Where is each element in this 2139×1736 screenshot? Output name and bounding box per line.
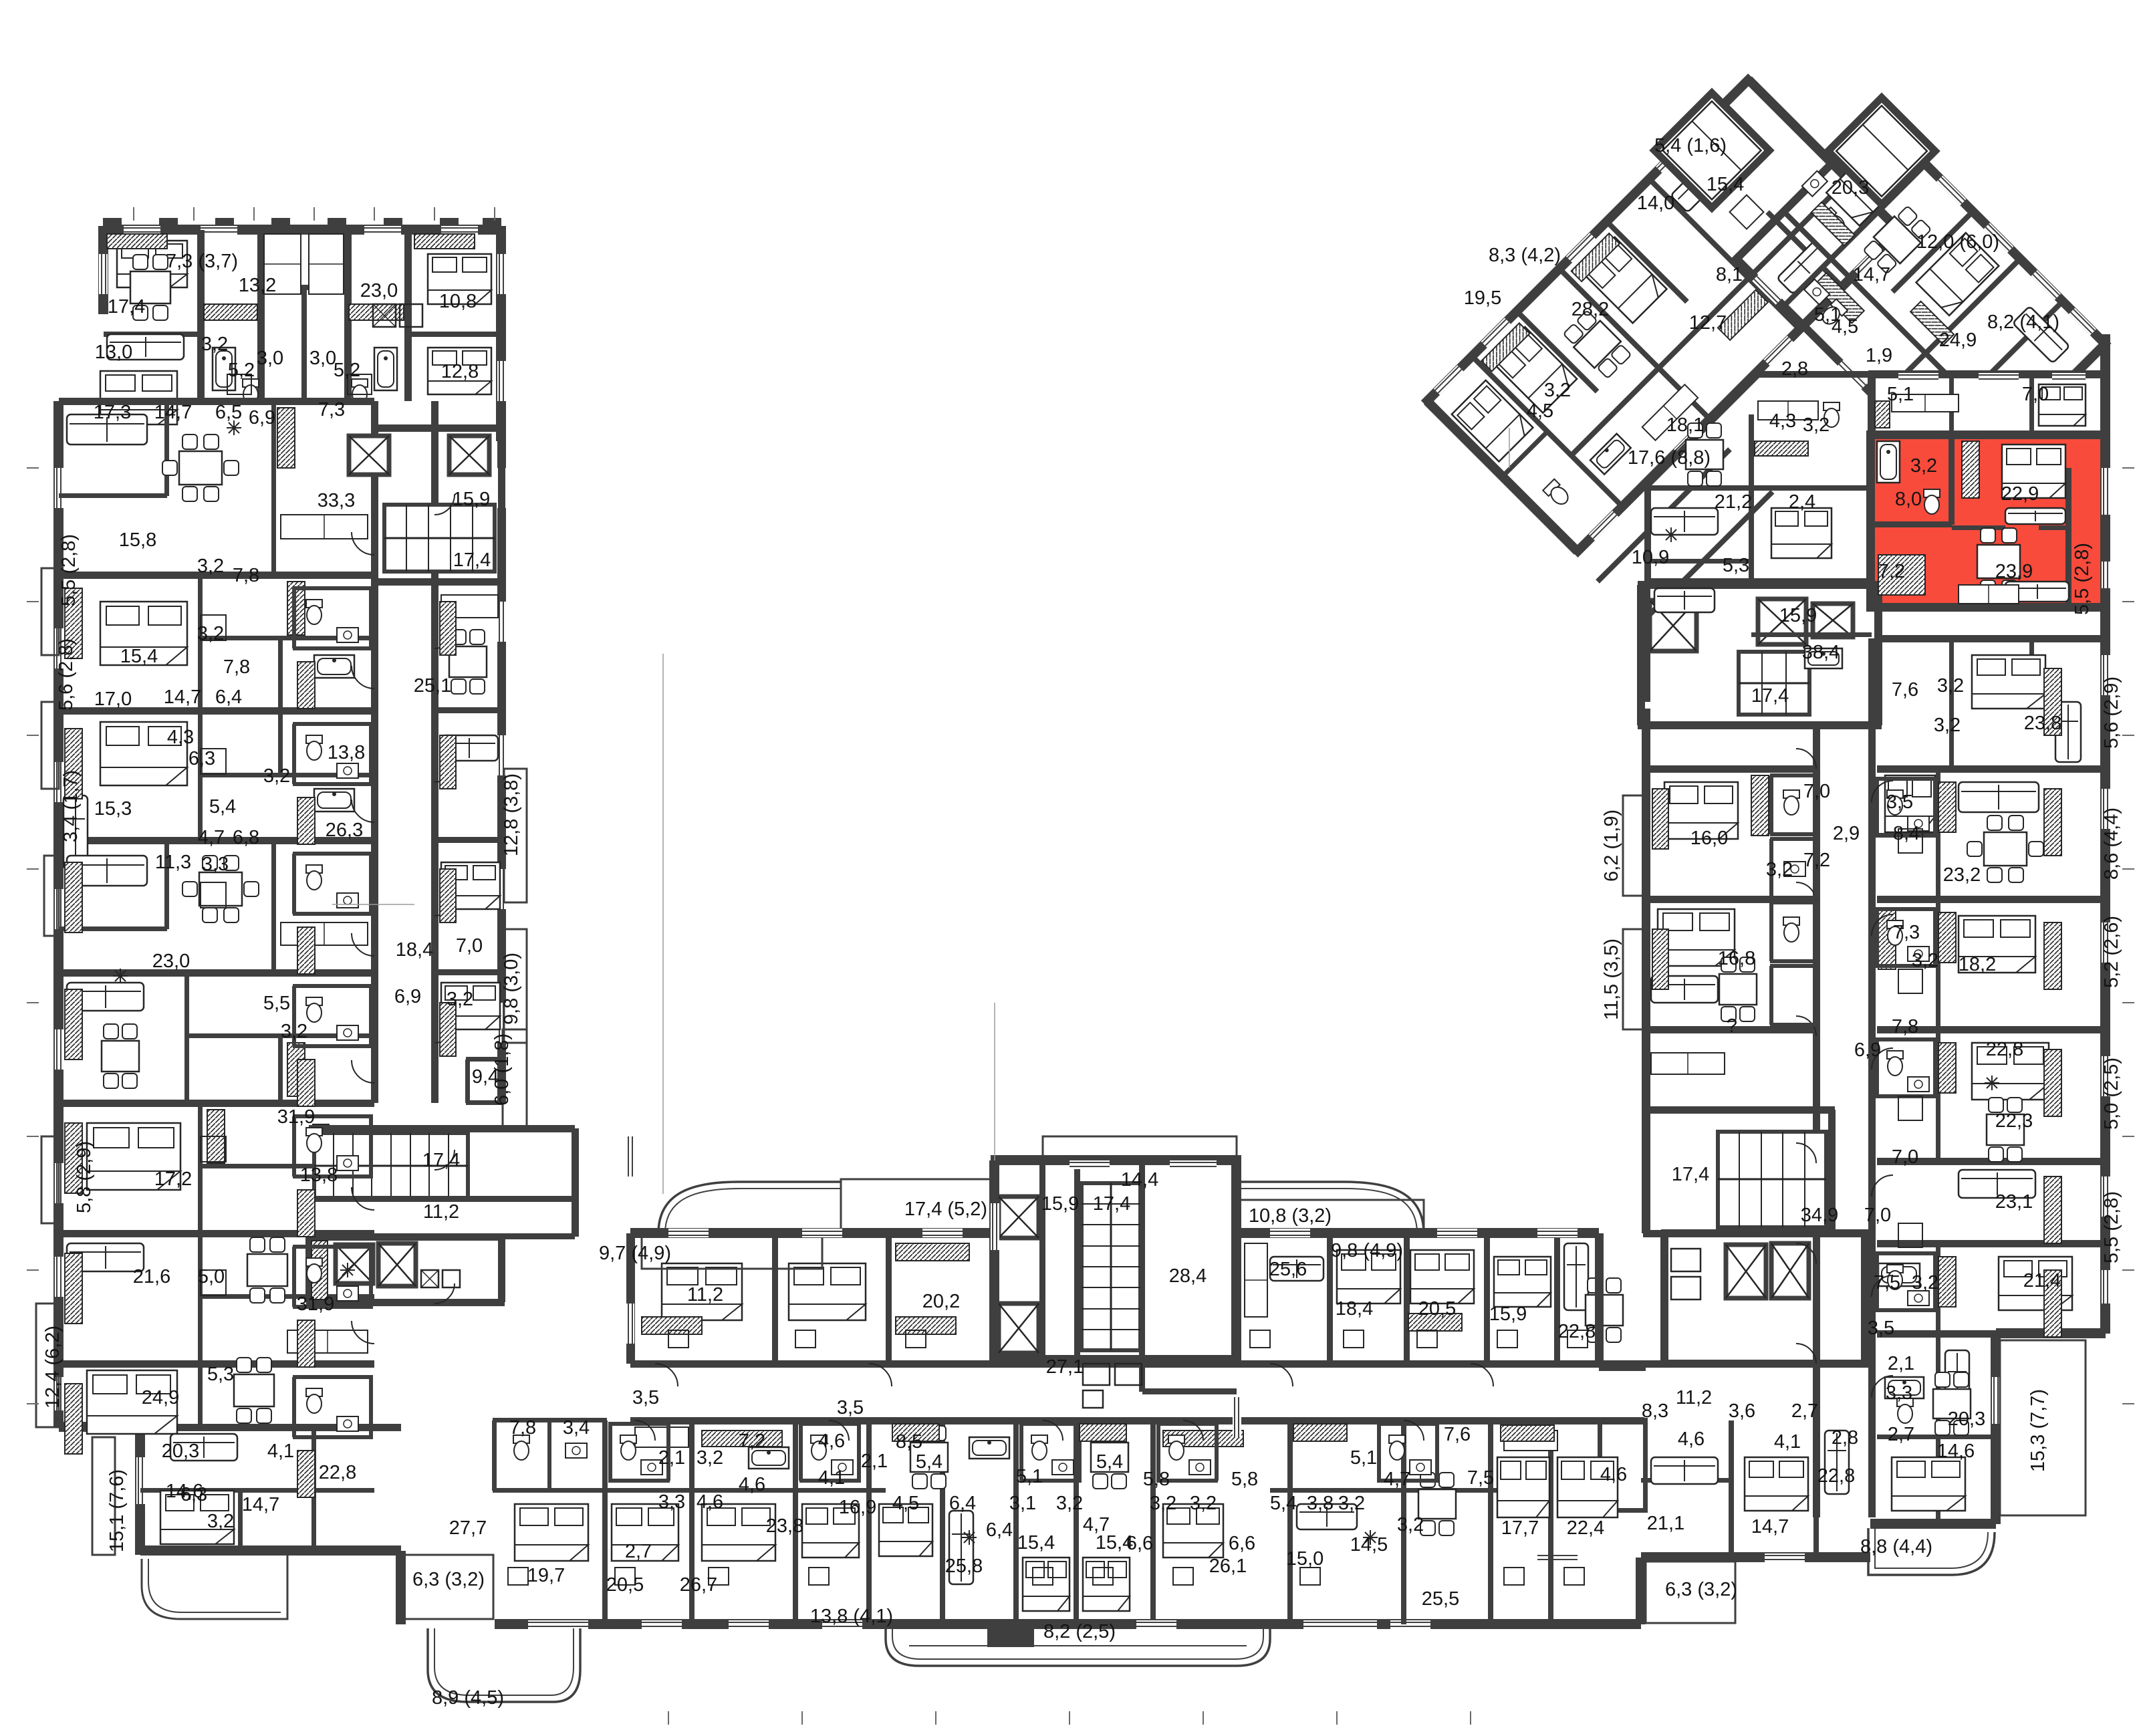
svg-text:2,1: 2,1	[861, 1451, 888, 1472]
svg-text:23,0: 23,0	[360, 280, 398, 301]
svg-text:7,8: 7,8	[509, 1417, 536, 1439]
svg-text:7,0: 7,0	[1864, 1205, 1891, 1226]
svg-text:5,8 (2,9): 5,8 (2,9)	[74, 1141, 95, 1213]
svg-text:23,8: 23,8	[766, 1515, 803, 1537]
svg-text:3,5: 3,5	[1868, 1318, 1894, 1339]
svg-text:4,3: 4,3	[167, 727, 194, 748]
svg-text:7,3: 7,3	[318, 399, 345, 420]
svg-text:4,6: 4,6	[1600, 1464, 1627, 1485]
svg-text:5,0: 5,0	[198, 1266, 225, 1287]
svg-text:8,3 (4,2): 8,3 (4,2)	[1489, 245, 1561, 266]
svg-text:19,5: 19,5	[1464, 287, 1501, 309]
svg-text:5,4: 5,4	[1270, 1493, 1297, 1514]
svg-text:5,6 (2,9): 5,6 (2,9)	[2101, 676, 2122, 749]
svg-text:6,6: 6,6	[1229, 1533, 1255, 1554]
svg-text:14,7: 14,7	[154, 402, 192, 423]
svg-text:25,6: 25,6	[1269, 1259, 1307, 1280]
svg-text:2,1: 2,1	[658, 1447, 685, 1469]
svg-text:2,8: 2,8	[1832, 1427, 1858, 1449]
svg-text:2,1: 2,1	[1888, 1353, 1914, 1374]
svg-text:5,5 (2,8): 5,5 (2,8)	[2071, 543, 2093, 615]
svg-text:15,9: 15,9	[1779, 605, 1817, 626]
svg-text:5,1: 5,1	[1350, 1447, 1377, 1469]
svg-text:24,9: 24,9	[1939, 330, 1977, 351]
svg-text:7,0: 7,0	[1803, 781, 1830, 802]
svg-text:22,8: 22,8	[1986, 1039, 2023, 1060]
svg-text:8,5: 8,5	[896, 1431, 922, 1453]
svg-text:3,2: 3,2	[697, 1447, 723, 1469]
svg-text:3,3: 3,3	[1886, 1382, 1912, 1404]
svg-text:3,6: 3,6	[1729, 1400, 1755, 1422]
svg-text:21,6: 21,6	[133, 1266, 170, 1287]
svg-text:2,9: 2,9	[1833, 823, 1860, 844]
svg-text:3,5: 3,5	[1886, 791, 1913, 813]
svg-text:23,0: 23,0	[152, 951, 190, 972]
svg-text:4,6: 4,6	[1678, 1429, 1705, 1450]
svg-text:5,3: 5,3	[207, 1364, 234, 1385]
svg-text:28,4: 28,4	[1169, 1265, 1207, 1287]
svg-text:5,5 (2,8): 5,5 (2,8)	[2101, 1191, 2122, 1263]
svg-text:8,8 (4,4): 8,8 (4,4)	[1860, 1536, 1932, 1558]
svg-text:17,4: 17,4	[422, 1150, 460, 1171]
svg-text:6,9: 6,9	[249, 407, 275, 428]
svg-text:8,0: 8,0	[1895, 489, 1922, 510]
svg-text:6,8: 6,8	[233, 827, 259, 848]
svg-text:27,1: 27,1	[1046, 1356, 1084, 1378]
svg-text:25,5: 25,5	[1422, 1588, 1459, 1610]
svg-text:5,1: 5,1	[1016, 1466, 1043, 1487]
svg-text:10,9: 10,9	[1632, 547, 1669, 568]
svg-text:22,3: 22,3	[1995, 1110, 2033, 1132]
svg-text:6,5: 6,5	[215, 402, 242, 423]
svg-text:21,1: 21,1	[1647, 1513, 1684, 1534]
svg-text:12,4 (6,2): 12,4 (6,2)	[42, 1326, 64, 1408]
svg-text:17,0: 17,0	[94, 689, 132, 710]
svg-text:21,4: 21,4	[2023, 1270, 2061, 1291]
svg-text:7,2: 7,2	[1803, 850, 1830, 871]
svg-text:2,8: 2,8	[1781, 358, 1808, 380]
svg-text:20,5: 20,5	[1418, 1298, 1456, 1320]
svg-text:11,2: 11,2	[423, 1201, 459, 1223]
svg-text:7,3: 7,3	[1893, 922, 1920, 943]
svg-text:15,1 (7,6): 15,1 (7,6)	[106, 1469, 128, 1552]
svg-text:7,5: 7,5	[1874, 1272, 1900, 1293]
svg-text:3,2: 3,2	[197, 555, 224, 577]
svg-text:6,9: 6,9	[1854, 1039, 1881, 1061]
svg-text:5,1: 5,1	[1887, 384, 1914, 405]
svg-text:21,2: 21,2	[1715, 491, 1752, 513]
svg-text:3,1: 3,1	[1009, 1493, 1036, 1514]
svg-text:18,4: 18,4	[396, 939, 433, 961]
svg-text:12,8 (3,8): 12,8 (3,8)	[501, 773, 522, 856]
svg-text:8,9 (4,5): 8,9 (4,5)	[432, 1687, 504, 1709]
svg-text:5,5 (2,8): 5,5 (2,8)	[58, 534, 80, 606]
svg-text:20,3: 20,3	[1948, 1408, 1985, 1430]
svg-text:4,6: 4,6	[818, 1431, 845, 1452]
svg-text:13,8 (4,1): 13,8 (4,1)	[810, 1606, 893, 1627]
svg-text:3,2: 3,2	[1766, 859, 1793, 880]
svg-text:20,5: 20,5	[606, 1574, 644, 1596]
svg-text:3,4: 3,4	[563, 1417, 590, 1439]
svg-text:7,0: 7,0	[1892, 1146, 1918, 1168]
svg-text:10,8: 10,8	[439, 291, 477, 312]
svg-text:6,9: 6,9	[394, 986, 421, 1007]
svg-text:5,0 (2,5): 5,0 (2,5)	[2101, 1058, 2122, 1130]
svg-text:17,2: 17,2	[154, 1168, 192, 1190]
svg-text:15,4: 15,4	[1017, 1532, 1055, 1554]
svg-text:22,4: 22,4	[1567, 1517, 1604, 1539]
svg-text:3,2: 3,2	[1397, 1514, 1424, 1535]
svg-text:28,2: 28,2	[1571, 299, 1609, 320]
svg-text:17,7: 17,7	[1501, 1517, 1539, 1539]
svg-text:6,4: 6,4	[215, 687, 242, 708]
svg-text:14,6: 14,6	[1937, 1441, 1975, 1462]
svg-text:8,2 (4,1): 8,2 (4,1)	[1987, 312, 2059, 333]
svg-text:17,3: 17,3	[94, 402, 131, 423]
svg-text:15,4: 15,4	[1707, 174, 1744, 195]
svg-text:17,4: 17,4	[108, 296, 145, 318]
svg-text:5,6 (2,8): 5,6 (2,8)	[55, 638, 77, 711]
svg-text:14,7: 14,7	[1853, 264, 1890, 285]
svg-text:15,8: 15,8	[119, 529, 156, 551]
svg-text:22,8: 22,8	[1817, 1465, 1855, 1487]
svg-text:23,8: 23,8	[2024, 713, 2061, 734]
svg-text:20,3: 20,3	[162, 1441, 199, 1462]
svg-text:8,3: 8,3	[1642, 1400, 1668, 1422]
svg-text:38,4: 38,4	[1802, 642, 1840, 663]
svg-text:5,4: 5,4	[916, 1451, 942, 1473]
svg-text:3,2: 3,2	[1934, 715, 1961, 736]
svg-text:6,3 (3,2): 6,3 (3,2)	[412, 1569, 485, 1590]
svg-text:14,5: 14,5	[1350, 1534, 1388, 1556]
svg-text:9,8 (3,0): 9,8 (3,0)	[501, 953, 522, 1025]
svg-text:3,2: 3,2	[1937, 675, 1964, 697]
svg-text:7,8: 7,8	[1892, 1016, 1918, 1037]
svg-text:16,8: 16,8	[1718, 948, 1755, 969]
svg-text:4,6: 4,6	[739, 1474, 765, 1495]
svg-text:9,8 (4,9): 9,8 (4,9)	[1331, 1240, 1403, 1261]
svg-text:14,4: 14,4	[1121, 1169, 1158, 1191]
svg-text:5,2: 5,2	[228, 360, 255, 381]
svg-text:3,2: 3,2	[263, 765, 290, 787]
svg-text:7,2: 7,2	[1878, 561, 1905, 582]
svg-text:5,3: 5,3	[1723, 555, 1749, 576]
svg-text:22,9: 22,9	[2001, 483, 2039, 505]
svg-text:3,2: 3,2	[1912, 950, 1938, 971]
svg-text:17,4: 17,4	[453, 549, 491, 571]
svg-text:20,3: 20,3	[1832, 177, 1869, 199]
svg-text:6,4: 6,4	[949, 1493, 976, 1514]
svg-text:4,5: 4,5	[1832, 316, 1858, 338]
svg-text:31,9: 31,9	[297, 1293, 334, 1315]
svg-text:3,5: 3,5	[632, 1387, 659, 1408]
svg-text:17,4: 17,4	[1751, 685, 1789, 707]
svg-text:23,1: 23,1	[1995, 1191, 2033, 1213]
svg-text:17,4: 17,4	[1093, 1193, 1130, 1215]
svg-text:3,3: 3,3	[658, 1491, 685, 1513]
svg-text:3,2: 3,2	[1910, 455, 1937, 477]
svg-text:8,2 (2,5): 8,2 (2,5)	[1043, 1621, 1116, 1642]
svg-text:3,4 (1,7): 3,4 (1,7)	[60, 770, 82, 842]
svg-text:2,7: 2,7	[1791, 1400, 1818, 1422]
svg-text:3,2: 3,2	[1338, 1493, 1365, 1514]
svg-text:33,3: 33,3	[318, 490, 355, 511]
svg-text:15,9: 15,9	[1489, 1304, 1527, 1325]
svg-text:3,2: 3,2	[197, 623, 224, 644]
svg-text:3,2: 3,2	[1056, 1493, 1083, 1514]
svg-text:4,3: 4,3	[1769, 410, 1796, 432]
svg-text:5,8: 5,8	[1231, 1469, 1258, 1490]
svg-text:14,0: 14,0	[1637, 193, 1674, 214]
svg-text:23,9: 23,9	[1995, 561, 2033, 582]
svg-text:7,3 (3,7): 7,3 (3,7)	[166, 251, 238, 272]
svg-text:27,7: 27,7	[449, 1517, 487, 1539]
svg-text:6,3 (3,2): 6,3 (3,2)	[1665, 1579, 1737, 1600]
svg-text:8,1: 8,1	[1716, 264, 1743, 285]
svg-text:3,5: 3,5	[837, 1397, 864, 1418]
svg-text:10,8 (3,2): 10,8 (3,2)	[1249, 1205, 1332, 1227]
svg-text:23,2: 23,2	[1943, 864, 1981, 886]
svg-text:9,7 (4,9): 9,7 (4,9)	[599, 1243, 671, 1264]
svg-text:26,1: 26,1	[1209, 1556, 1247, 1577]
svg-text:25,1: 25,1	[414, 675, 451, 697]
svg-text:3,2: 3,2	[447, 989, 473, 1010]
svg-text:3,2: 3,2	[1150, 1493, 1176, 1514]
svg-text:15,3: 15,3	[94, 798, 132, 820]
svg-text:4,7: 4,7	[198, 827, 225, 848]
svg-text:11,2: 11,2	[687, 1284, 723, 1306]
svg-text:34,9: 34,9	[1801, 1205, 1838, 1226]
svg-text:6,4: 6,4	[986, 1519, 1013, 1541]
svg-text:24,9: 24,9	[142, 1387, 179, 1408]
svg-text:17,4: 17,4	[1672, 1164, 1709, 1185]
svg-text:4,5: 4,5	[892, 1493, 919, 1514]
svg-text:31,9: 31,9	[277, 1106, 315, 1128]
svg-text:16,9: 16,9	[839, 1497, 876, 1518]
svg-text:18,2: 18,2	[1959, 954, 1996, 975]
svg-text:22,8: 22,8	[319, 1462, 356, 1483]
svg-text:14,6: 14,6	[166, 1481, 203, 1502]
svg-text:3,2: 3,2	[1912, 1272, 1938, 1293]
svg-text:11,2: 11,2	[1676, 1387, 1712, 1408]
svg-text:7,0: 7,0	[456, 935, 483, 957]
svg-text:12,0 (6,0): 12,0 (6,0)	[1916, 231, 1999, 253]
svg-text:3,2: 3,2	[1544, 380, 1571, 401]
svg-text:25,8: 25,8	[945, 1556, 983, 1577]
svg-text:4,5: 4,5	[1527, 400, 1553, 422]
svg-text:3,2: 3,2	[207, 1511, 234, 1532]
svg-text:7,6: 7,6	[1444, 1424, 1471, 1445]
svg-text:?: ?	[1727, 1015, 1737, 1037]
svg-text:26,7: 26,7	[680, 1574, 717, 1596]
svg-text:13,0: 13,0	[95, 342, 132, 363]
svg-text:5,4 (1,6): 5,4 (1,6)	[1654, 135, 1727, 156]
svg-text:17,6 (8,8): 17,6 (8,8)	[1628, 447, 1711, 469]
svg-text:3,3: 3,3	[202, 854, 229, 875]
svg-text:11,3: 11,3	[155, 852, 191, 873]
svg-text:15,4: 15,4	[120, 646, 158, 667]
svg-text:13,8: 13,8	[300, 1164, 338, 1186]
svg-text:3,8: 3,8	[1307, 1493, 1334, 1514]
svg-text:12,7: 12,7	[1689, 312, 1727, 334]
svg-text:12,8: 12,8	[441, 361, 479, 382]
svg-text:6,3: 6,3	[188, 748, 215, 769]
svg-text:19,7: 19,7	[527, 1565, 565, 1586]
svg-text:5,4: 5,4	[209, 796, 236, 818]
svg-text:4,1: 4,1	[267, 1441, 294, 1462]
svg-text:14,7: 14,7	[164, 687, 201, 708]
svg-text:22,8: 22,8	[1558, 1321, 1596, 1342]
svg-text:3,0: 3,0	[309, 348, 336, 369]
svg-text:13,8: 13,8	[328, 742, 365, 763]
svg-text:2,7: 2,7	[625, 1541, 652, 1562]
svg-text:18,1: 18,1	[1666, 414, 1704, 436]
svg-text:5,2 (2,6): 5,2 (2,6)	[2101, 916, 2122, 988]
svg-text:15,3 (7,7): 15,3 (7,7)	[2027, 1389, 2049, 1472]
svg-text:7,6: 7,6	[1892, 679, 1918, 701]
svg-text:5,5: 5,5	[263, 993, 290, 1014]
svg-text:3,2: 3,2	[1803, 414, 1830, 436]
svg-text:4,1: 4,1	[818, 1467, 845, 1489]
svg-text:4,7: 4,7	[1384, 1469, 1410, 1490]
svg-text:5,4: 5,4	[1096, 1451, 1123, 1473]
svg-text:11,5 (3,5): 11,5 (3,5)	[1601, 939, 1622, 1020]
svg-text:6,2 (1,9): 6,2 (1,9)	[1601, 810, 1622, 882]
svg-text:1,9: 1,9	[1866, 345, 1892, 366]
svg-text:3,2: 3,2	[201, 334, 228, 355]
svg-text:14,7: 14,7	[1751, 1516, 1789, 1537]
svg-text:20,2: 20,2	[922, 1291, 960, 1312]
svg-text:15,9: 15,9	[1041, 1193, 1079, 1215]
svg-text:4,6: 4,6	[697, 1491, 723, 1513]
svg-text:15,9: 15,9	[453, 489, 490, 510]
svg-text:7,0: 7,0	[2022, 384, 2049, 405]
svg-text:5,8: 5,8	[1143, 1469, 1170, 1490]
svg-text:7,8: 7,8	[233, 565, 259, 586]
svg-text:17,4 (5,2): 17,4 (5,2)	[904, 1199, 987, 1220]
svg-text:13,2: 13,2	[239, 275, 276, 296]
svg-text:8,6 (4,4): 8,6 (4,4)	[2101, 808, 2122, 880]
svg-text:4,1: 4,1	[1774, 1431, 1801, 1453]
svg-text:7,2: 7,2	[739, 1431, 765, 1452]
svg-text:18,4: 18,4	[1336, 1298, 1373, 1320]
svg-text:26,3: 26,3	[326, 820, 363, 841]
svg-text:15,4: 15,4	[1096, 1532, 1133, 1554]
svg-text:2,7: 2,7	[1888, 1424, 1914, 1445]
svg-text:7,8: 7,8	[223, 656, 250, 678]
svg-text:8,4: 8,4	[1893, 823, 1920, 844]
svg-text:9,4: 9,4	[472, 1066, 499, 1088]
svg-text:5,2: 5,2	[334, 360, 360, 381]
svg-text:16,0: 16,0	[1690, 828, 1728, 849]
svg-text:3,2: 3,2	[1190, 1493, 1217, 1514]
svg-text:3,2: 3,2	[281, 1021, 307, 1042]
svg-text:2,4: 2,4	[1789, 491, 1815, 513]
svg-text:14,7: 14,7	[242, 1494, 279, 1515]
svg-text:15,0: 15,0	[1286, 1548, 1324, 1570]
svg-text:7,5: 7,5	[1467, 1467, 1494, 1489]
svg-text:3,0: 3,0	[257, 348, 283, 369]
